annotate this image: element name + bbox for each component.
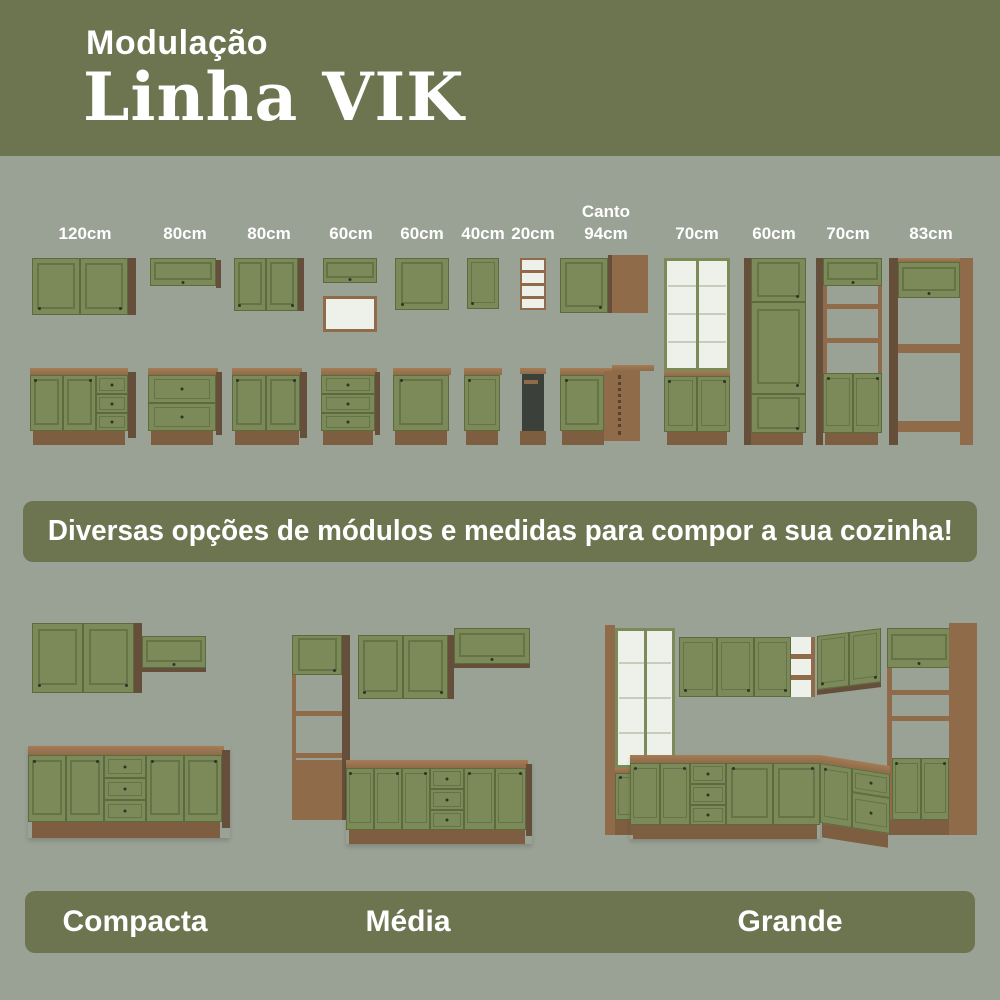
cabinet-side-panel xyxy=(216,260,221,288)
cabinet-top xyxy=(30,368,128,375)
cabinet-door xyxy=(921,758,949,820)
wall-cabinet-run xyxy=(679,637,791,697)
cabinet-door xyxy=(726,763,773,825)
base-cabinet xyxy=(30,368,136,445)
fridge-top-flip-door xyxy=(887,628,951,668)
cabinet-side-panel xyxy=(375,372,380,435)
cabinet-plinth xyxy=(235,431,299,445)
cabinet-door xyxy=(30,375,63,431)
cabinet-door xyxy=(266,258,298,311)
wall-cabinet xyxy=(358,635,454,699)
kitchen-size-legend: Compacta Média Grande xyxy=(25,891,975,953)
drawer-front xyxy=(321,375,375,394)
cabinet-plinth xyxy=(889,820,949,835)
tower-lower-panel xyxy=(292,760,342,820)
drawer-front xyxy=(430,789,464,810)
cabinet-door xyxy=(751,258,806,302)
tall-tower xyxy=(292,635,350,820)
base-cabinet-run xyxy=(630,755,820,839)
drawer-front xyxy=(104,755,146,778)
open-appliance-niche xyxy=(823,286,882,373)
page-title: Linha VIK xyxy=(83,58,465,136)
top-flip-door xyxy=(823,258,882,286)
module-size-label: 80cm xyxy=(230,195,308,245)
cabinet-door xyxy=(266,375,300,431)
open-shelf-column xyxy=(520,258,546,310)
wall-cabinet xyxy=(32,623,142,693)
cabinet-top xyxy=(232,368,302,375)
tower-side-panel xyxy=(949,623,977,835)
module-40cm: 40cm xyxy=(458,195,508,470)
cabinet-side-panel xyxy=(744,258,751,445)
glass-door-divider xyxy=(696,261,699,368)
cabinet-side-panel xyxy=(134,623,142,693)
cabinet-side-panel xyxy=(526,764,532,836)
cabinet-side-panel xyxy=(216,372,222,435)
fold-out-wood-door xyxy=(604,371,640,441)
base-cabinet-run xyxy=(28,746,230,838)
wood-bottom-band xyxy=(898,421,960,432)
cabinet-door xyxy=(234,258,266,311)
drawer-front xyxy=(96,375,128,394)
cabinet-door xyxy=(184,755,222,822)
open-shelving xyxy=(292,675,342,760)
wall-flip-door xyxy=(323,258,377,283)
niche-side xyxy=(878,286,882,373)
cabinet-door xyxy=(374,768,402,830)
tall-pantry-cabinet xyxy=(744,258,806,445)
cabinet-door xyxy=(817,632,849,690)
cabinet-top xyxy=(148,368,218,375)
cabinet-plinth xyxy=(633,825,817,839)
drawer-front xyxy=(690,784,726,805)
module-size-label: 40cm xyxy=(458,195,508,245)
cabinet-door xyxy=(717,637,754,697)
drawer-front xyxy=(690,763,726,784)
shelf-side xyxy=(811,637,815,697)
cabinet-plinth xyxy=(751,433,803,445)
cabinet-door xyxy=(346,768,374,830)
cabinet-door xyxy=(630,763,660,825)
cabinet-door xyxy=(853,373,882,433)
cabinet-door xyxy=(660,763,690,825)
cabinet-door xyxy=(754,637,791,697)
countertop xyxy=(346,760,528,768)
right-wall-cabinets xyxy=(817,628,881,694)
module-80cm-a: 80cm xyxy=(146,195,224,470)
drawer-front xyxy=(96,413,128,431)
module-83cm-fridge-surround: 83cm xyxy=(886,195,976,470)
frame-side-panel xyxy=(889,258,898,445)
cabinet-door xyxy=(664,376,697,432)
cabinet-door xyxy=(83,623,134,693)
kitchen-grande xyxy=(578,600,992,880)
cabinet-door xyxy=(464,768,495,830)
cabinet-door xyxy=(292,635,342,675)
cabinet-side-panel xyxy=(605,625,615,835)
cabinet-side-panel xyxy=(128,372,136,438)
cabinet-plinth xyxy=(151,431,213,445)
cabinet-door xyxy=(773,763,820,825)
wall-flip-door xyxy=(454,628,530,664)
legend-compacta: Compacta xyxy=(35,891,235,953)
drawer-front xyxy=(148,403,216,431)
cabinet-door xyxy=(146,755,184,822)
corner-wood-panel xyxy=(608,255,648,313)
cabinet-side-panel xyxy=(128,258,136,315)
cabinet-top xyxy=(464,368,502,375)
cabinet-side-panel xyxy=(298,258,304,311)
kitchen-examples xyxy=(0,600,1000,880)
cabinet-plinth xyxy=(667,432,727,445)
cabinet-door xyxy=(820,763,852,828)
wood-shelf xyxy=(823,338,882,343)
promo-banner-text: Diversas opções de módulos e medidas par… xyxy=(47,515,952,548)
modules-strip: 120cm 80cm 80cm xyxy=(0,195,1000,470)
drawer-front xyxy=(852,792,890,834)
wall-flip-door xyxy=(142,636,206,668)
glass-doors xyxy=(615,628,675,768)
countertop xyxy=(28,746,224,755)
cabinet-side-panel xyxy=(816,258,823,445)
wall-cabinet-door xyxy=(395,258,449,310)
wood-shelf xyxy=(823,304,882,309)
base-open-unit xyxy=(520,368,546,445)
top-flip-door xyxy=(898,262,960,298)
cabinet-door xyxy=(892,758,921,820)
wood-shelf xyxy=(292,753,342,758)
cabinet-door xyxy=(823,373,853,433)
shelf-side xyxy=(292,675,296,760)
wood-shelf xyxy=(292,711,342,716)
kitchen-compacta xyxy=(20,600,290,880)
cabinet-door xyxy=(32,258,80,315)
legend-grande: Grande xyxy=(690,891,890,953)
drawer-front xyxy=(690,805,726,825)
module-size-label: 83cm xyxy=(886,195,976,245)
module-60cm-b: 60cm xyxy=(390,195,454,470)
cabinet-door xyxy=(358,635,403,699)
wall-cabinet-door xyxy=(467,258,499,309)
wall-flip-door xyxy=(150,258,216,286)
cabinet-plinth xyxy=(520,431,546,445)
cabinet-door xyxy=(697,376,730,432)
cabinet-side-panel xyxy=(300,372,307,438)
cabinet-door xyxy=(66,755,104,822)
header-banner: Modulação Linha VIK xyxy=(0,0,1000,156)
rail xyxy=(524,380,538,384)
module-size-label: 80cm xyxy=(146,195,224,245)
base-cabinet xyxy=(148,368,222,445)
cabinet-door xyxy=(560,375,604,431)
module-60cm-a: 60cm xyxy=(316,195,386,470)
cabinet-door xyxy=(402,768,430,830)
fridge-surround-frame xyxy=(889,258,973,445)
cabinet-plinth xyxy=(323,431,373,445)
wood-shelf xyxy=(887,716,949,721)
base-cabinet xyxy=(393,368,453,445)
tall-oven-cabinet xyxy=(816,258,882,445)
kitchen-media xyxy=(288,600,570,880)
cabinet-top xyxy=(321,368,377,375)
base-cabinet xyxy=(232,368,308,445)
corner-wall-door xyxy=(560,258,608,313)
cabinet-plinth xyxy=(349,830,525,844)
cabinet-plinth xyxy=(33,431,125,445)
module-80cm-b: 80cm xyxy=(230,195,308,470)
hinge-dots xyxy=(618,375,621,435)
base-cabinet xyxy=(464,368,504,445)
drawer-front xyxy=(430,768,464,789)
wall-cabinet xyxy=(234,258,304,311)
module-size-label: 120cm xyxy=(30,195,140,245)
cabinet-bottom-edge xyxy=(142,668,206,672)
corner-wood-edge xyxy=(608,255,612,313)
countertop xyxy=(630,755,820,763)
legend-media: Média xyxy=(308,891,508,953)
drawer-front xyxy=(321,394,375,413)
drawer-front xyxy=(430,810,464,830)
cabinet-door xyxy=(232,375,266,431)
module-size-label: 60cm xyxy=(738,195,810,245)
cabinet-plinth xyxy=(562,431,604,445)
drawer-front xyxy=(96,394,128,413)
cabinet-door xyxy=(679,637,717,697)
cabinet-door xyxy=(849,628,881,686)
cabinet-door xyxy=(32,623,83,693)
cabinet-door xyxy=(393,375,449,431)
base-cabinet xyxy=(321,368,381,445)
module-size-label: 60cm xyxy=(316,195,386,245)
promo-banner: Diversas opções de módulos e medidas par… xyxy=(23,501,977,562)
wall-cabinet xyxy=(32,258,136,315)
frame-side-panel xyxy=(960,258,973,445)
cabinet-door xyxy=(495,768,526,830)
corner-base-cabinet xyxy=(560,365,654,445)
module-20cm: 20cm xyxy=(512,195,554,470)
module-70cm-oven-tower: 70cm xyxy=(812,195,884,470)
cabinet-door xyxy=(751,302,806,394)
module-size-label: 60cm xyxy=(390,195,454,245)
module-size-label: 70cm xyxy=(660,195,734,245)
drawer-front xyxy=(104,800,146,822)
wood-shelf xyxy=(898,344,960,353)
wood-shelf xyxy=(887,690,949,695)
module-canto-94cm: Canto 94cm xyxy=(556,195,656,470)
cabinet-top xyxy=(393,368,451,375)
glass-doors xyxy=(664,258,730,371)
module-60cm-pantry: 60cm xyxy=(738,195,810,470)
cabinet-door xyxy=(464,375,500,431)
cabinet-door xyxy=(80,258,128,315)
cabinet-plinth xyxy=(466,431,498,445)
glass-door-divider xyxy=(644,631,647,765)
tall-glass-cabinet xyxy=(664,258,730,445)
base-cabinet-right-wing xyxy=(820,755,890,848)
module-size-label: 70cm xyxy=(812,195,884,245)
cabinet-door xyxy=(28,755,66,822)
fridge-surround-tower xyxy=(887,668,977,835)
open-niche xyxy=(323,296,377,332)
cabinet-bottom-edge xyxy=(454,664,530,668)
cabinet-door xyxy=(751,394,806,433)
base-cabinet-run xyxy=(346,760,532,844)
cabinet-door xyxy=(63,375,96,431)
module-size-label: 20cm xyxy=(512,195,554,245)
niche-side xyxy=(823,286,827,373)
module-70cm-glass-tower: 70cm xyxy=(660,195,734,470)
module-size-label: Canto 94cm xyxy=(556,195,656,245)
cabinet-door xyxy=(403,635,448,699)
cabinet-plinth xyxy=(32,822,220,838)
module-120cm: 120cm xyxy=(30,195,140,470)
drawer-front xyxy=(148,375,216,403)
corner-open-shelf xyxy=(791,637,815,697)
cabinet-plinth xyxy=(825,433,878,445)
cabinet-plinth xyxy=(395,431,447,445)
drawer-front xyxy=(321,413,375,431)
drawer-front xyxy=(104,778,146,800)
cabinet-side-panel xyxy=(222,750,230,828)
